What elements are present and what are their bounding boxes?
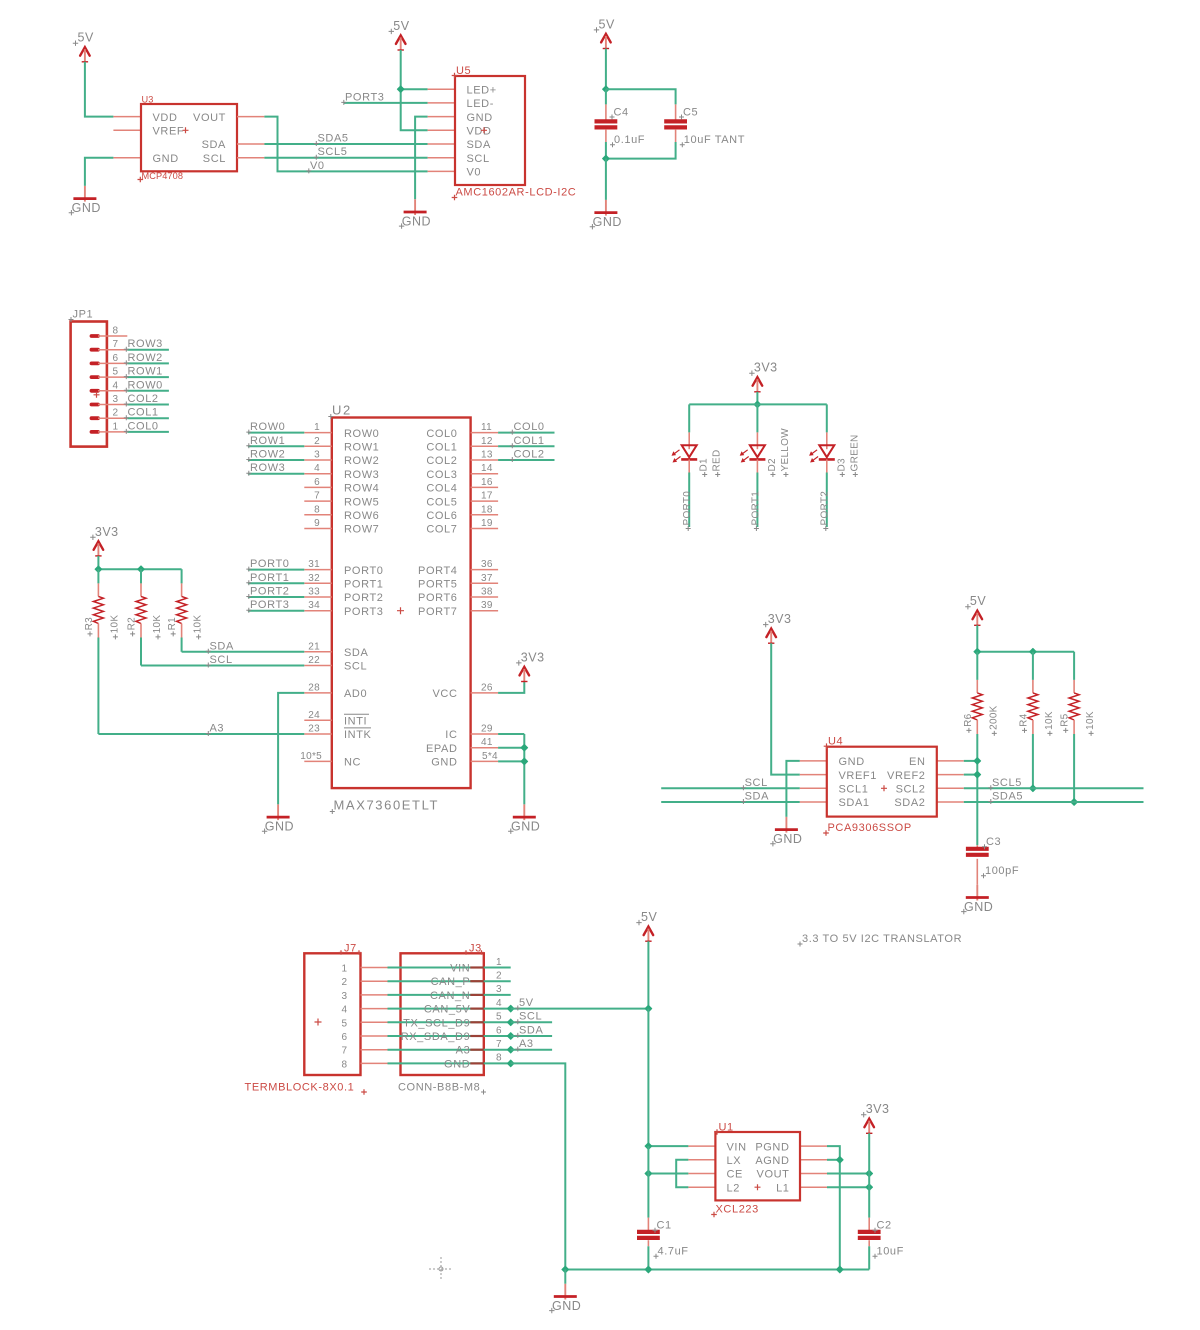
svg-text:SDA2: SDA2 — [894, 797, 925, 809]
svg-text:AD0: AD0 — [344, 688, 367, 700]
svg-text:R1: R1 — [167, 617, 178, 631]
svg-text:PORT3: PORT3 — [345, 91, 384, 103]
svg-text:V0: V0 — [467, 167, 482, 179]
svg-text:36: 36 — [481, 559, 493, 570]
svg-text:GREEN: GREEN — [849, 434, 860, 471]
svg-text:IC: IC — [445, 729, 457, 741]
svg-text:5V: 5V — [78, 31, 94, 45]
svg-text:SDA5: SDA5 — [318, 133, 349, 145]
svg-text:PORT5: PORT5 — [418, 579, 457, 591]
svg-text:28: 28 — [308, 682, 320, 693]
svg-text:GND: GND — [552, 1299, 581, 1313]
svg-text:R2: R2 — [127, 617, 138, 631]
svg-text:COL1: COL1 — [514, 435, 545, 447]
svg-text:22: 22 — [308, 655, 320, 666]
svg-text:D3: D3 — [836, 458, 847, 472]
svg-text:SDA: SDA — [210, 640, 234, 652]
svg-text:GND: GND — [444, 1058, 470, 1070]
svg-text:7: 7 — [113, 339, 119, 350]
svg-text:CONN-B8B-M8: CONN-B8B-M8 — [398, 1082, 480, 1094]
svg-text:ROW1: ROW1 — [128, 366, 163, 378]
svg-text:ROW3: ROW3 — [250, 462, 285, 474]
svg-text:5V: 5V — [599, 17, 615, 31]
svg-text:26: 26 — [481, 682, 493, 693]
svg-text:U5: U5 — [456, 65, 471, 77]
svg-text:11: 11 — [481, 422, 492, 433]
svg-text:4: 4 — [496, 998, 502, 1009]
svg-text:LED+: LED+ — [467, 84, 497, 96]
svg-text:VREF2: VREF2 — [887, 770, 925, 782]
svg-text:ROW0: ROW0 — [344, 428, 379, 440]
svg-text:A3: A3 — [456, 1045, 471, 1057]
svg-text:EN: EN — [909, 756, 925, 768]
svg-text:GND: GND — [964, 900, 993, 914]
svg-text:37: 37 — [481, 573, 493, 584]
svg-text:1: 1 — [113, 421, 119, 432]
svg-text:D2: D2 — [767, 458, 778, 472]
svg-text:ROW2: ROW2 — [250, 449, 285, 461]
svg-text:COL1: COL1 — [128, 407, 159, 419]
svg-text:COL2: COL2 — [426, 455, 457, 467]
svg-text:14: 14 — [481, 463, 493, 474]
svg-text:3V3: 3V3 — [754, 361, 778, 375]
svg-text:2: 2 — [113, 408, 119, 419]
svg-text:5*4: 5*4 — [482, 751, 498, 762]
svg-text:U4: U4 — [828, 736, 843, 748]
svg-text:8: 8 — [113, 326, 119, 337]
svg-text:AGND: AGND — [755, 1155, 789, 1167]
svg-text:MCP4708: MCP4708 — [142, 171, 184, 181]
svg-text:PORT6: PORT6 — [418, 592, 457, 604]
svg-text:VIN: VIN — [450, 963, 470, 975]
svg-text:MAX7360ETLT: MAX7360ETLT — [334, 798, 440, 813]
svg-text:100pF: 100pF — [985, 865, 1019, 877]
svg-text:ROW5: ROW5 — [344, 496, 379, 508]
svg-text:V0: V0 — [310, 160, 325, 172]
svg-text:3: 3 — [342, 991, 348, 1002]
svg-text:LED-: LED- — [467, 98, 494, 110]
svg-text:PORT3: PORT3 — [250, 599, 289, 611]
svg-text:PORT7: PORT7 — [418, 606, 457, 618]
svg-text:ROW2: ROW2 — [344, 455, 379, 467]
svg-text:R4: R4 — [1019, 713, 1030, 727]
svg-text:COL0: COL0 — [426, 428, 457, 440]
svg-text:7: 7 — [314, 491, 320, 502]
svg-text:SDA: SDA — [745, 791, 769, 803]
svg-text:7: 7 — [496, 1039, 502, 1050]
svg-text:R3: R3 — [84, 617, 95, 631]
svg-text:5V: 5V — [970, 594, 986, 608]
svg-text:1: 1 — [496, 957, 502, 968]
svg-text:PORT2: PORT2 — [344, 592, 383, 604]
svg-text:10*5: 10*5 — [300, 751, 322, 762]
svg-text:INTK: INTK — [344, 729, 372, 741]
svg-text:0.1uF: 0.1uF — [614, 134, 645, 146]
svg-text:1: 1 — [342, 964, 348, 975]
svg-text:10K: 10K — [109, 615, 120, 634]
svg-text:24: 24 — [308, 710, 320, 721]
svg-text:34: 34 — [308, 600, 320, 611]
svg-text:23: 23 — [308, 724, 320, 735]
svg-text:8: 8 — [314, 504, 320, 515]
svg-text:AMC1602AR-LCD-I2C: AMC1602AR-LCD-I2C — [456, 187, 577, 199]
svg-text:COL2: COL2 — [128, 393, 159, 405]
svg-text:18: 18 — [481, 504, 493, 515]
svg-text:GND: GND — [431, 757, 457, 769]
svg-text:U2: U2 — [332, 403, 352, 418]
svg-text:A3: A3 — [210, 723, 225, 735]
svg-text:SDA1: SDA1 — [839, 797, 870, 809]
svg-text:5: 5 — [496, 1012, 502, 1023]
svg-text:3: 3 — [113, 394, 119, 405]
svg-text:CAN_N: CAN_N — [430, 990, 470, 1002]
svg-text:VCC: VCC — [432, 688, 457, 700]
svg-text:SCL: SCL — [519, 1011, 542, 1023]
svg-text:YELLOW: YELLOW — [780, 428, 791, 472]
svg-text:SCL2: SCL2 — [896, 784, 926, 796]
svg-text:C1: C1 — [657, 1220, 672, 1232]
svg-text:4: 4 — [314, 463, 320, 474]
svg-text:6: 6 — [113, 353, 119, 364]
svg-text:41: 41 — [481, 737, 493, 748]
svg-text:17: 17 — [481, 491, 493, 502]
svg-text:7: 7 — [342, 1046, 348, 1057]
svg-text:GND: GND — [839, 756, 865, 768]
svg-text:PORT2: PORT2 — [250, 586, 289, 598]
svg-text:ROW4: ROW4 — [344, 483, 379, 495]
svg-text:SDA: SDA — [202, 139, 226, 151]
svg-text:ROW2: ROW2 — [128, 352, 163, 364]
svg-text:10K: 10K — [1085, 711, 1096, 730]
svg-text:6: 6 — [496, 1025, 502, 1036]
svg-text:LX: LX — [727, 1155, 742, 1167]
svg-text:J7: J7 — [344, 943, 357, 955]
svg-text:C3: C3 — [986, 836, 1001, 848]
svg-text:38: 38 — [481, 587, 493, 598]
svg-text:COL0: COL0 — [514, 421, 545, 433]
svg-text:A3: A3 — [519, 1038, 534, 1050]
svg-text:SCL5: SCL5 — [318, 146, 348, 158]
svg-text:PCA9306SSOP: PCA9306SSOP — [828, 822, 912, 834]
svg-text:ROW0: ROW0 — [128, 379, 163, 391]
svg-text:16: 16 — [481, 477, 493, 488]
svg-text:L2: L2 — [727, 1182, 740, 1194]
svg-text:SCL1: SCL1 — [839, 784, 869, 796]
svg-text:CE: CE — [727, 1169, 743, 1181]
svg-text:C5: C5 — [683, 106, 698, 118]
svg-text:3V3: 3V3 — [866, 1102, 890, 1116]
svg-text:3V3: 3V3 — [768, 612, 792, 626]
svg-text:COL5: COL5 — [426, 496, 457, 508]
svg-text:VREF: VREF — [153, 126, 185, 138]
svg-text:PORT0: PORT0 — [682, 491, 693, 526]
svg-text:ROW3: ROW3 — [128, 338, 163, 350]
svg-text:8: 8 — [342, 1059, 348, 1070]
svg-text:GND: GND — [511, 820, 540, 834]
svg-text:10K: 10K — [152, 615, 163, 634]
svg-text:SDA: SDA — [344, 647, 368, 659]
svg-text:3.3 TO 5V I2C TRANSLATOR: 3.3 TO 5V I2C TRANSLATOR — [802, 933, 962, 945]
svg-text:PORT1: PORT1 — [250, 572, 289, 584]
svg-text:GND: GND — [402, 215, 431, 229]
svg-text:200K: 200K — [988, 705, 999, 730]
svg-text:2: 2 — [496, 971, 502, 982]
svg-text:2: 2 — [314, 436, 320, 447]
svg-text:COL1: COL1 — [426, 442, 457, 454]
svg-text:29: 29 — [481, 724, 493, 735]
svg-text:PORT1: PORT1 — [750, 491, 761, 526]
svg-text:GND: GND — [265, 820, 294, 834]
svg-text:2: 2 — [342, 977, 348, 988]
svg-text:ROW7: ROW7 — [344, 524, 379, 536]
svg-text:SCL5: SCL5 — [992, 777, 1022, 789]
svg-text:32: 32 — [308, 573, 320, 584]
svg-text:L1: L1 — [776, 1182, 789, 1194]
svg-text:8: 8 — [496, 1053, 502, 1064]
svg-text:CAN_P: CAN_P — [431, 976, 471, 988]
svg-text:EPAD: EPAD — [426, 743, 458, 755]
svg-text:10uF TANT: 10uF TANT — [684, 134, 745, 146]
svg-text:R5: R5 — [1060, 713, 1071, 727]
svg-text:COL3: COL3 — [426, 469, 457, 481]
svg-text:COL4: COL4 — [426, 483, 457, 495]
svg-text:CAN_5V: CAN_5V — [424, 1004, 470, 1016]
svg-text:COL7: COL7 — [426, 524, 457, 536]
svg-text:JP1: JP1 — [73, 309, 94, 321]
svg-text:COL2: COL2 — [514, 449, 545, 461]
svg-text:GND: GND — [593, 215, 622, 229]
svg-text:3V3: 3V3 — [521, 650, 545, 664]
svg-text:33: 33 — [308, 587, 320, 598]
svg-text:VIN: VIN — [727, 1141, 747, 1153]
svg-text:D1: D1 — [699, 458, 710, 472]
svg-text:3: 3 — [314, 450, 320, 461]
svg-text:ROW0: ROW0 — [250, 421, 285, 433]
svg-text:4: 4 — [113, 380, 119, 391]
svg-text:4.7uF: 4.7uF — [658, 1246, 689, 1258]
svg-text:RED: RED — [712, 449, 723, 471]
svg-text:31: 31 — [308, 559, 320, 570]
svg-text:U1: U1 — [719, 1122, 734, 1134]
svg-text:6: 6 — [342, 1032, 348, 1043]
svg-text:PORT4: PORT4 — [418, 565, 457, 577]
svg-text:PORT1: PORT1 — [344, 579, 383, 591]
svg-text:TERMBLOCK-8X0.1: TERMBLOCK-8X0.1 — [245, 1082, 355, 1094]
svg-text:U3: U3 — [142, 95, 154, 105]
svg-text:5V: 5V — [641, 910, 657, 924]
svg-text:INTI: INTI — [344, 716, 367, 728]
svg-text:3: 3 — [496, 984, 502, 995]
svg-text:ROW3: ROW3 — [344, 469, 379, 481]
svg-text:5: 5 — [113, 367, 119, 378]
svg-text:SDA: SDA — [519, 1024, 543, 1036]
svg-text:21: 21 — [308, 641, 320, 652]
svg-text:SCL: SCL — [203, 153, 226, 165]
svg-text:SDA5: SDA5 — [992, 791, 1023, 803]
svg-text:PORT0: PORT0 — [344, 565, 383, 577]
svg-text:C2: C2 — [877, 1220, 892, 1232]
svg-text:RX_SDA_D9: RX_SDA_D9 — [401, 1031, 471, 1043]
svg-text:6: 6 — [314, 477, 320, 488]
svg-text:10K: 10K — [193, 615, 204, 634]
svg-text:SCL: SCL — [344, 661, 367, 673]
svg-text:39: 39 — [481, 600, 493, 611]
svg-text:19: 19 — [481, 518, 493, 529]
svg-text:GND: GND — [467, 112, 493, 124]
svg-text:ROW6: ROW6 — [344, 510, 379, 522]
svg-text:5V: 5V — [519, 997, 534, 1009]
svg-text:GND: GND — [72, 201, 101, 215]
svg-text:ROW1: ROW1 — [344, 442, 379, 454]
svg-text:NC: NC — [344, 757, 361, 769]
svg-text:TX_SCL_D9: TX_SCL_D9 — [403, 1017, 470, 1029]
svg-text:5V: 5V — [393, 19, 409, 33]
svg-text:1: 1 — [314, 422, 320, 433]
svg-text:GND: GND — [773, 832, 802, 846]
svg-text:R6: R6 — [963, 713, 974, 727]
svg-text:4: 4 — [342, 1005, 348, 1016]
svg-text:ROW1: ROW1 — [250, 435, 285, 447]
svg-text:SDA: SDA — [467, 139, 491, 151]
svg-text:12: 12 — [481, 436, 493, 447]
svg-text:VOUT: VOUT — [193, 112, 226, 124]
svg-text:VREF1: VREF1 — [839, 770, 877, 782]
svg-text:PORT3: PORT3 — [344, 606, 383, 618]
svg-text:XCL223: XCL223 — [716, 1204, 759, 1216]
svg-text:PORT0: PORT0 — [250, 558, 289, 570]
svg-text:13: 13 — [481, 450, 493, 461]
svg-text:3V3: 3V3 — [95, 525, 119, 539]
svg-text:GND: GND — [153, 153, 179, 165]
svg-text:9: 9 — [314, 518, 320, 529]
svg-text:VOUT: VOUT — [757, 1169, 790, 1181]
svg-text:10K: 10K — [1044, 711, 1055, 730]
svg-text:VDD: VDD — [153, 112, 178, 124]
svg-text:COL6: COL6 — [426, 510, 457, 522]
svg-text:PGND: PGND — [755, 1141, 789, 1153]
svg-text:10uF: 10uF — [877, 1246, 904, 1258]
svg-text:SCL: SCL — [745, 777, 768, 789]
svg-text:SCL: SCL — [467, 153, 490, 165]
svg-text:C4: C4 — [614, 106, 629, 118]
svg-text:PORT2: PORT2 — [820, 491, 831, 526]
svg-text:VDD: VDD — [467, 126, 492, 138]
svg-text:5: 5 — [342, 1018, 348, 1029]
svg-text:SCL: SCL — [210, 654, 233, 666]
svg-text:COL0: COL0 — [128, 420, 159, 432]
